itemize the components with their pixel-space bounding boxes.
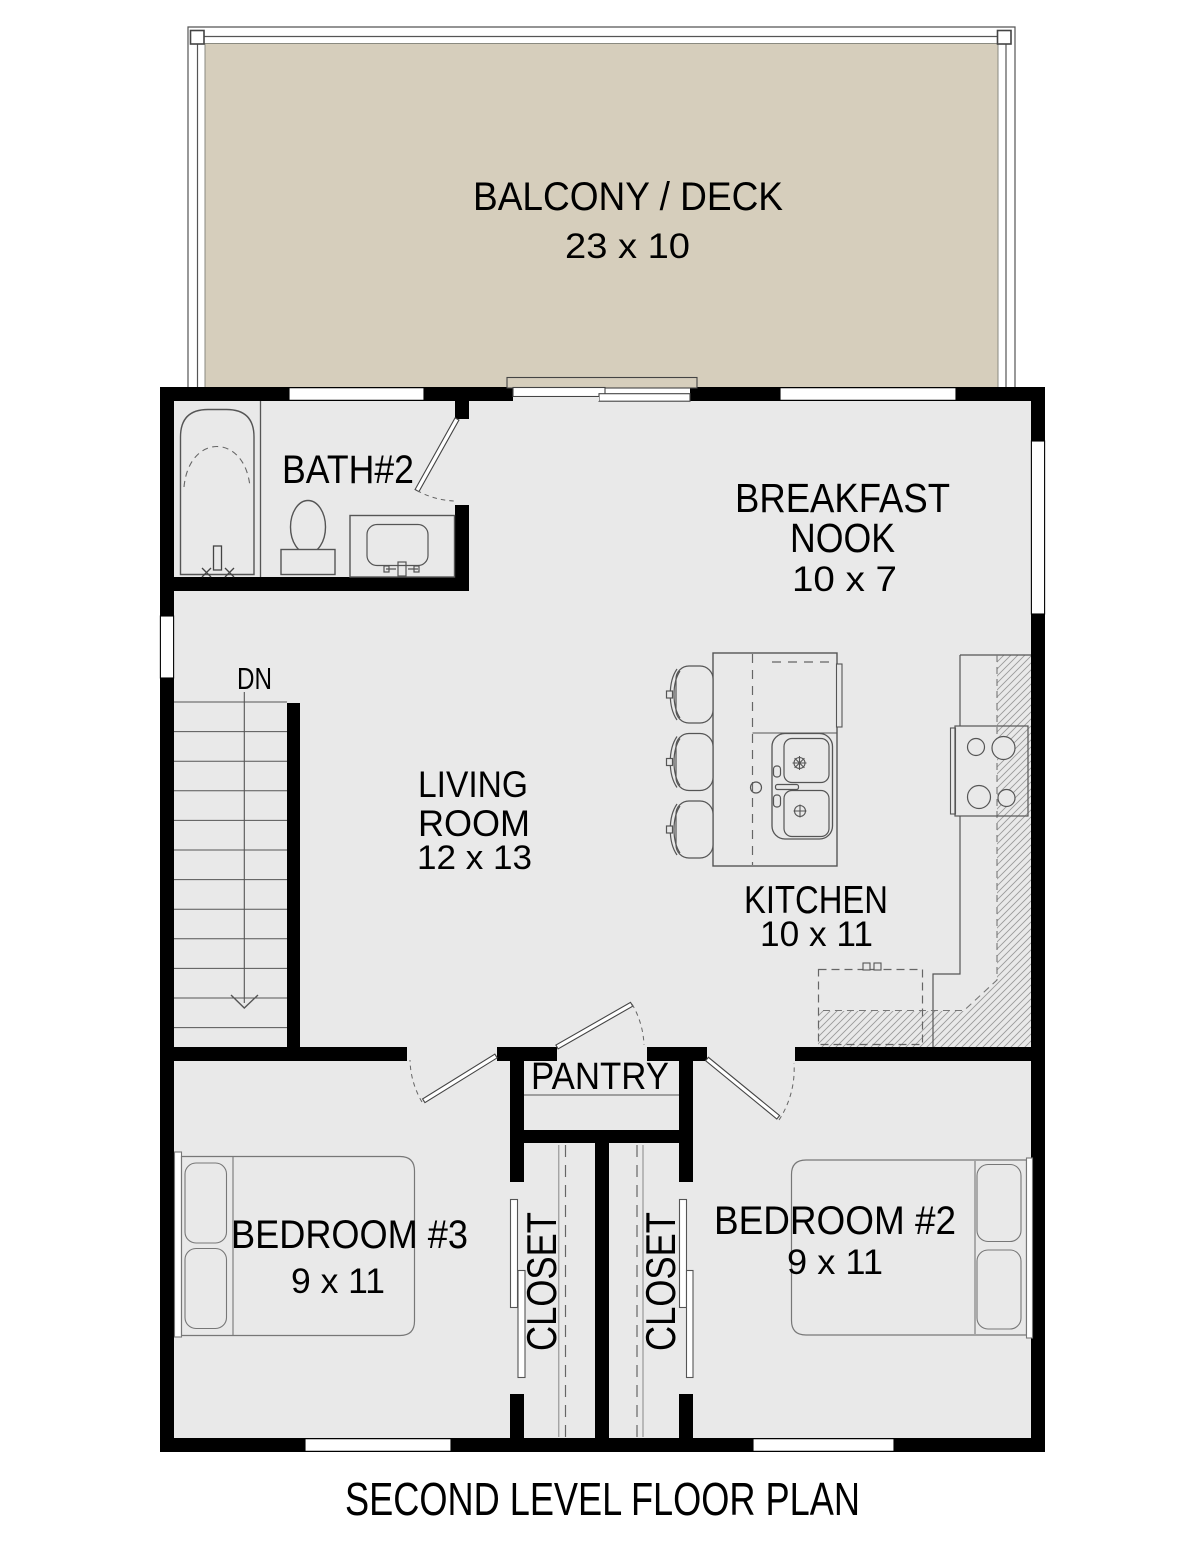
svg-text:DN: DN — [237, 661, 272, 696]
svg-text:9 x 11: 9 x 11 — [787, 1243, 883, 1282]
svg-text:LIVING: LIVING — [418, 764, 528, 805]
svg-text:PANTRY: PANTRY — [531, 1056, 669, 1098]
svg-text:BALCONY / DECK: BALCONY / DECK — [473, 175, 783, 219]
svg-text:SECOND LEVEL FLOOR PLAN: SECOND LEVEL FLOOR PLAN — [345, 1473, 860, 1525]
svg-text:23 x 10: 23 x 10 — [565, 227, 690, 266]
svg-text:NOOK: NOOK — [790, 515, 895, 561]
svg-text:10 x 7: 10 x 7 — [792, 560, 897, 599]
svg-text:ROOM: ROOM — [418, 803, 530, 844]
svg-text:BEDROOM #2: BEDROOM #2 — [714, 1199, 956, 1243]
svg-text:BATH#2: BATH#2 — [282, 448, 414, 492]
svg-text:10 x 11: 10 x 11 — [760, 915, 873, 954]
svg-text:BEDROOM #3: BEDROOM #3 — [231, 1213, 468, 1257]
svg-text:12 x 13: 12 x 13 — [417, 839, 532, 877]
svg-text:CLOSET: CLOSET — [637, 1212, 684, 1351]
svg-text:9 x 11: 9 x 11 — [291, 1262, 385, 1301]
svg-text:CLOSET: CLOSET — [518, 1212, 565, 1351]
